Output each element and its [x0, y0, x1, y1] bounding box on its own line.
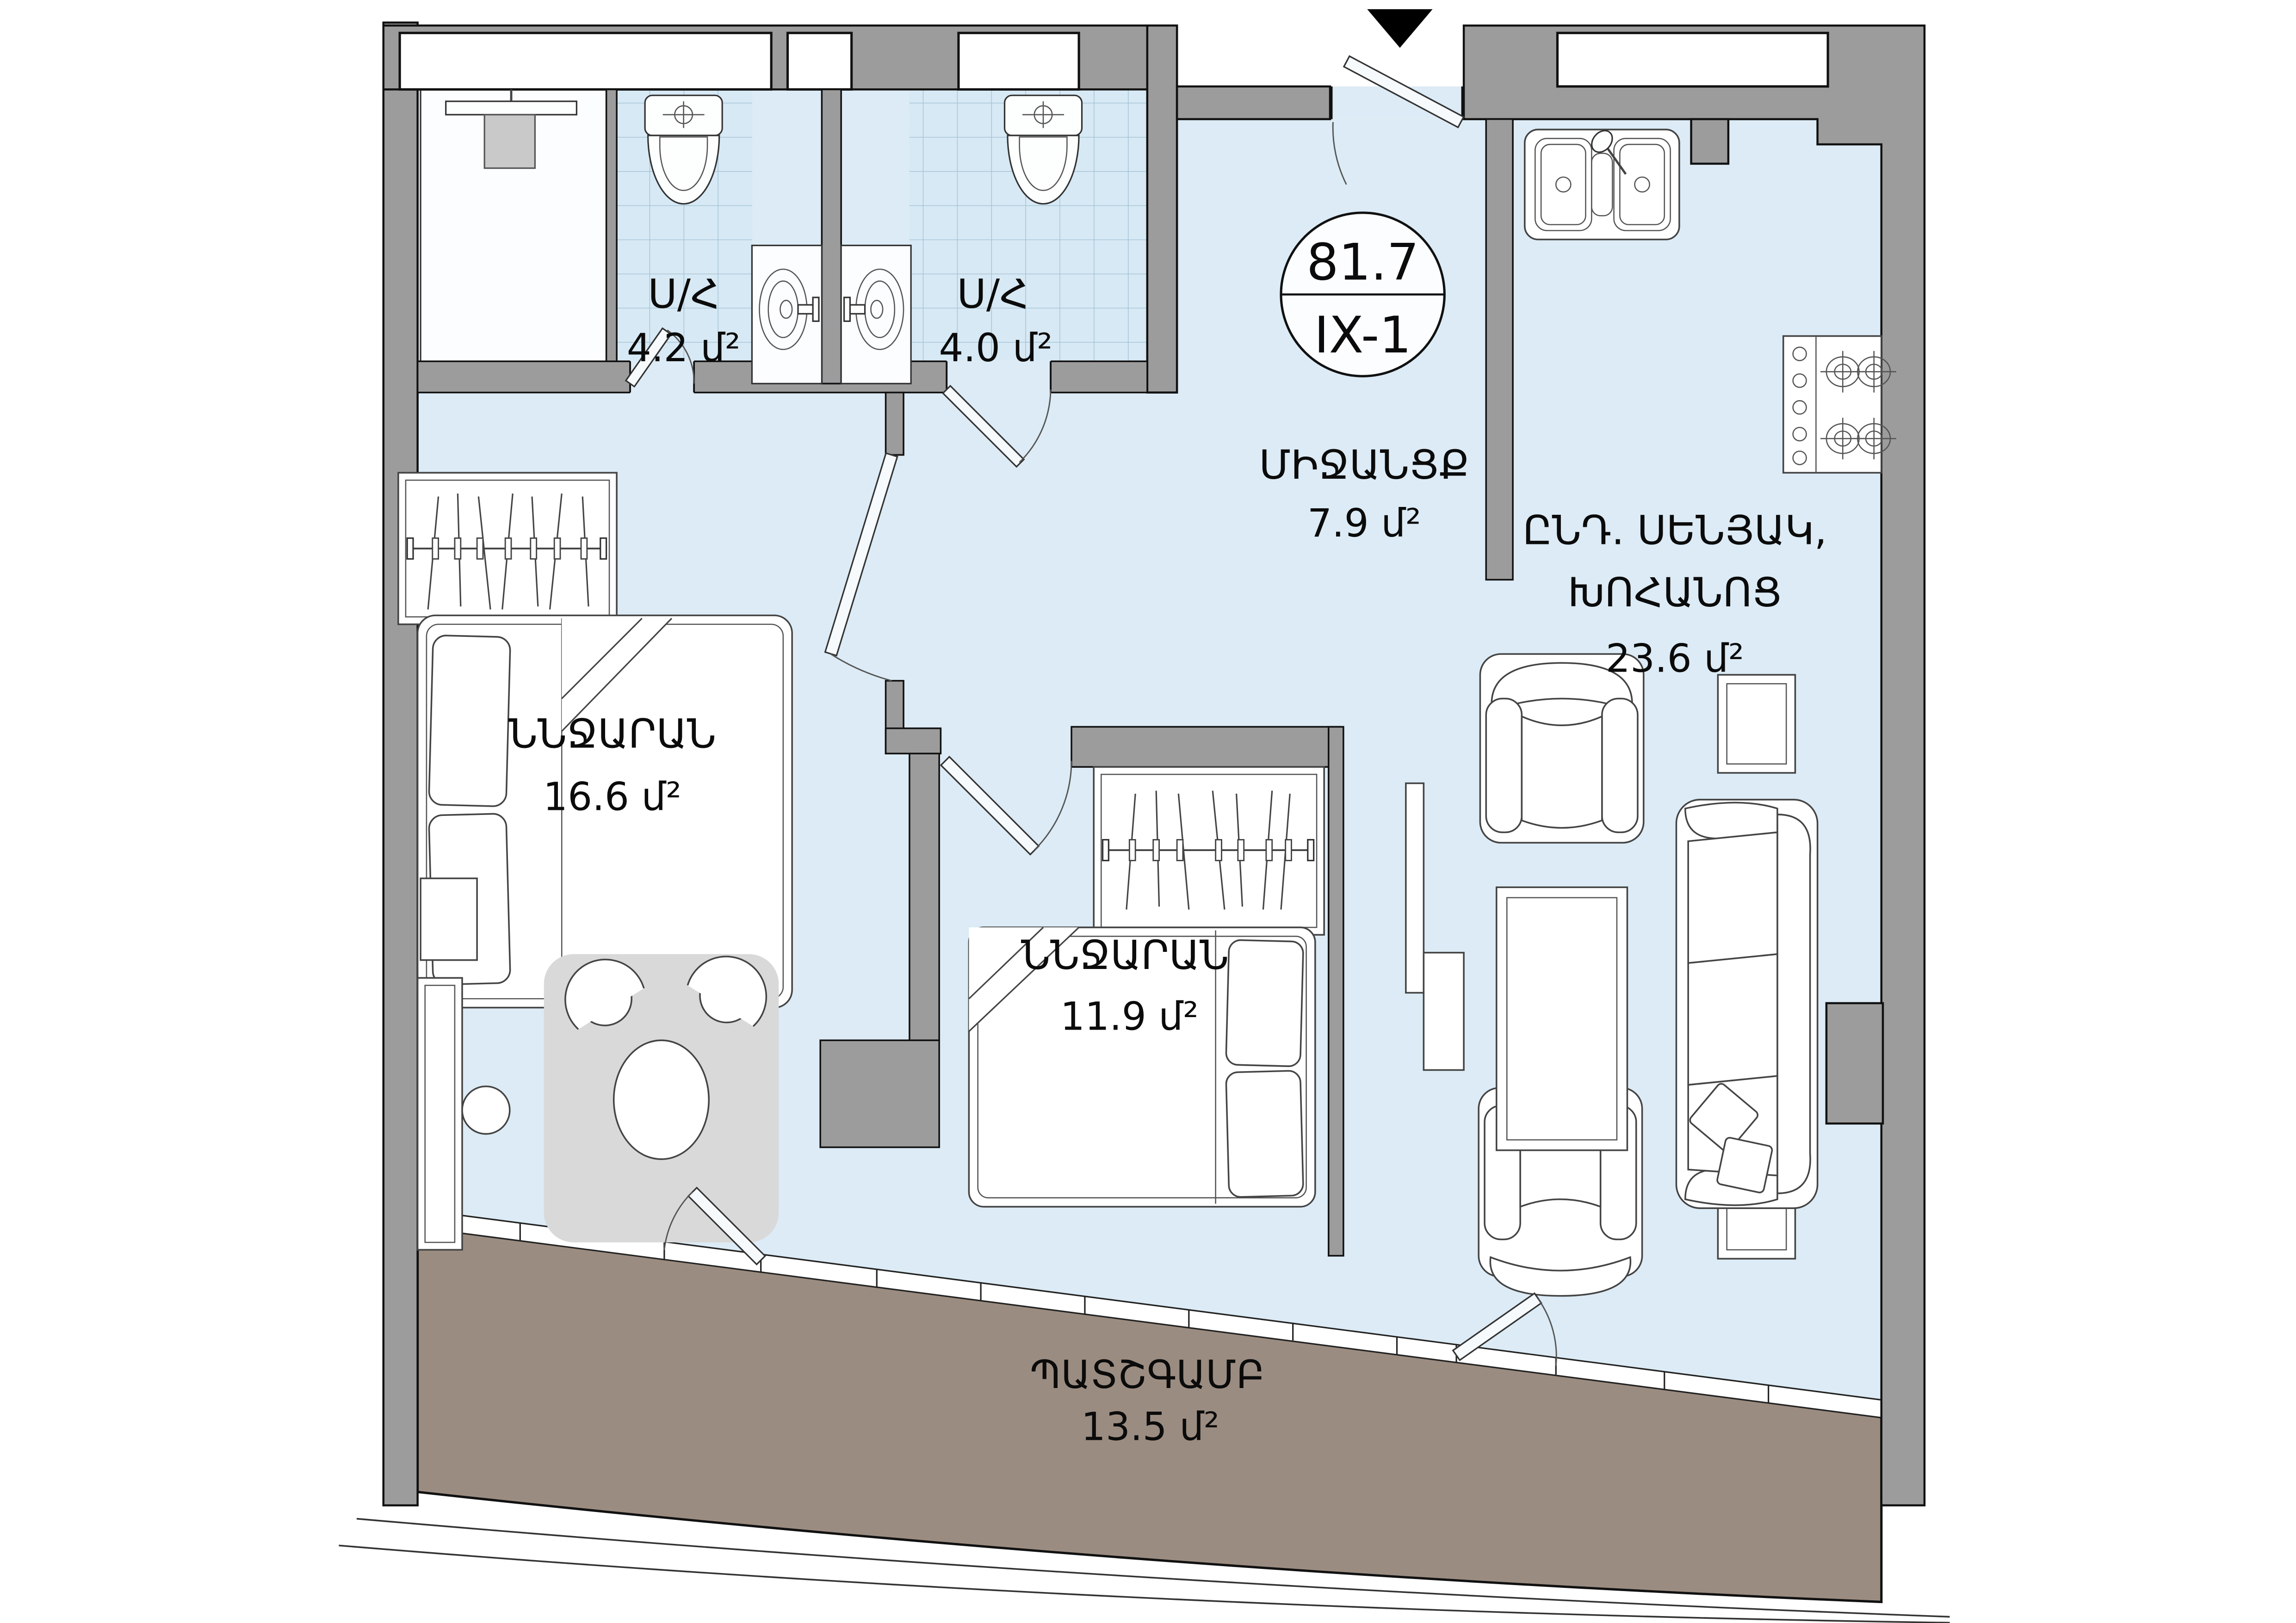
vestibule-wall: [1177, 86, 1330, 119]
window-3: [959, 33, 1079, 89]
badge-unit-id: IX-1: [1314, 306, 1411, 364]
wardrobe-hangers-icon: [398, 473, 617, 624]
bathroom-2-area: 4.0 մ²: [939, 325, 1052, 370]
bathroom-1-area: 4.2 մ²: [627, 325, 741, 370]
bedroom-1-area: 16.6 մ²: [543, 774, 681, 819]
stove-icon: [1783, 336, 1896, 473]
entrance-arrow-icon: [1367, 9, 1432, 48]
sink-alcove-1: [752, 246, 822, 384]
bedroom-divider-wall: [910, 753, 939, 1040]
window-4: [1557, 33, 1828, 86]
bedroom1-door-jamb-upper: [886, 393, 904, 455]
living-kitchen-name-1: ԸՆԴ. ՍԵՆՅԱԿ,: [1522, 507, 1827, 554]
hallway-name: ՄԻՋԱՆՑՔ: [1259, 442, 1469, 488]
bedroom2-east-wall: [1329, 727, 1343, 1256]
cabinet-icon: [421, 878, 477, 960]
bedroom-1-name: ՆՆՋԱՐԱՆ: [508, 710, 716, 757]
living-kitchen-name-2: ԽՈՀԱՆՈՑ: [1568, 569, 1782, 616]
dresser-icon: [418, 978, 462, 1250]
living-kitchen-area: 23.6 մ²: [1606, 636, 1744, 681]
bathroom-2-name: Ս/Հ: [957, 271, 1028, 318]
coffee-table-icon: [1497, 887, 1628, 1150]
stool-icon: [462, 1086, 510, 1134]
side-table-icon: [1718, 675, 1795, 773]
shower-divider-wall: [606, 89, 617, 361]
window-2: [788, 33, 852, 89]
kitchen-pier: [1691, 119, 1728, 164]
wardrobe-hangers-icon: [1094, 767, 1324, 935]
bedroom-2-area: 11.9 մ²: [1060, 994, 1199, 1039]
floor-plan: 81.7 IX-1 Ս/Հ 4.2 մ² Ս/Հ 4.0 մ² ՄԻՋԱՆՑՔ …: [0, 0, 2296, 1623]
left-wall: [384, 23, 418, 1506]
kitchen-hall-wall: [1486, 119, 1513, 580]
sink-divider-wall: [822, 89, 841, 383]
balcony-name: ՊԱՏՇԳԱՄԲ: [1030, 1352, 1264, 1397]
sofa-icon: [1676, 800, 1817, 1208]
bathroom-1-name: Ս/Հ: [648, 271, 719, 318]
bedroom-2-name: ՆՆՋԱՐԱՆ: [1021, 932, 1229, 979]
hallway-area: 7.9 մ²: [1307, 500, 1421, 546]
unit-badge: 81.7 IX-1: [1281, 213, 1444, 376]
window-1: [400, 33, 771, 89]
kitchen-sink-icon: [1525, 127, 1679, 240]
bathroom2-east-wall: [1147, 25, 1177, 392]
round-table-icon: [614, 1040, 709, 1159]
bedroom2-north-wall: [1071, 727, 1340, 767]
sink-alcove-2: [841, 246, 911, 384]
balcony-area: 13.5 մ²: [1081, 1404, 1219, 1449]
bedroom-divider-stub: [886, 728, 941, 754]
bedroom-divider-block: [820, 1040, 939, 1147]
armchair-icon: [1480, 654, 1643, 843]
east-wall-notch: [1826, 1003, 1883, 1123]
badge-total-area: 81.7: [1306, 233, 1419, 291]
